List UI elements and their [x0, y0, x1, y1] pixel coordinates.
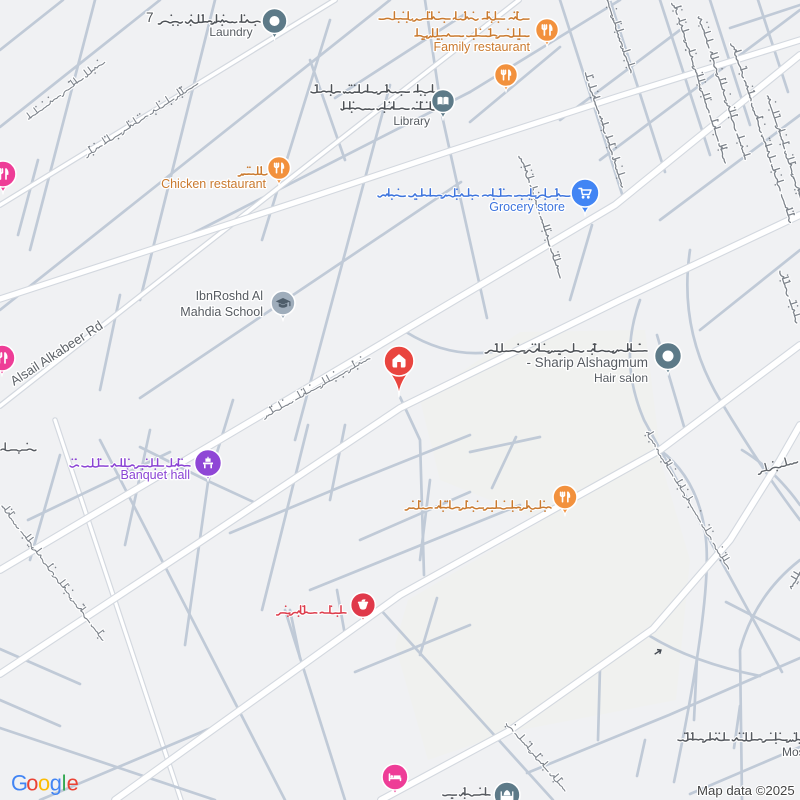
svg-text:Map data ©2025: Map data ©2025	[697, 783, 795, 798]
svg-text:o: o	[38, 771, 50, 796]
svg-text:Banquet hall: Banquet hall	[120, 468, 190, 482]
svg-text:Library: Library	[393, 114, 430, 128]
svg-text:Laundry: Laundry	[209, 25, 252, 39]
svg-text:g: g	[50, 771, 62, 796]
svg-text:Chicken restaurant: Chicken restaurant	[161, 177, 266, 191]
svg-text:l: l	[62, 771, 66, 796]
svg-text:Hair salon: Hair salon	[594, 371, 648, 385]
svg-text:Mosque: Mosque	[782, 745, 800, 759]
svg-text:Family restaurant: Family restaurant	[433, 40, 530, 54]
svg-text:IbnRoshd Al: IbnRoshd Al	[196, 289, 263, 303]
svg-text:o: o	[26, 771, 38, 796]
svg-text:- Sharip Alshagmum: - Sharip Alshagmum	[526, 355, 648, 370]
svg-text:7: 7	[146, 10, 154, 25]
svg-text:Mahdia School: Mahdia School	[180, 305, 263, 319]
svg-text:e: e	[67, 771, 79, 796]
svg-text:G: G	[11, 771, 28, 796]
svg-text:Grocery store: Grocery store	[489, 200, 565, 214]
